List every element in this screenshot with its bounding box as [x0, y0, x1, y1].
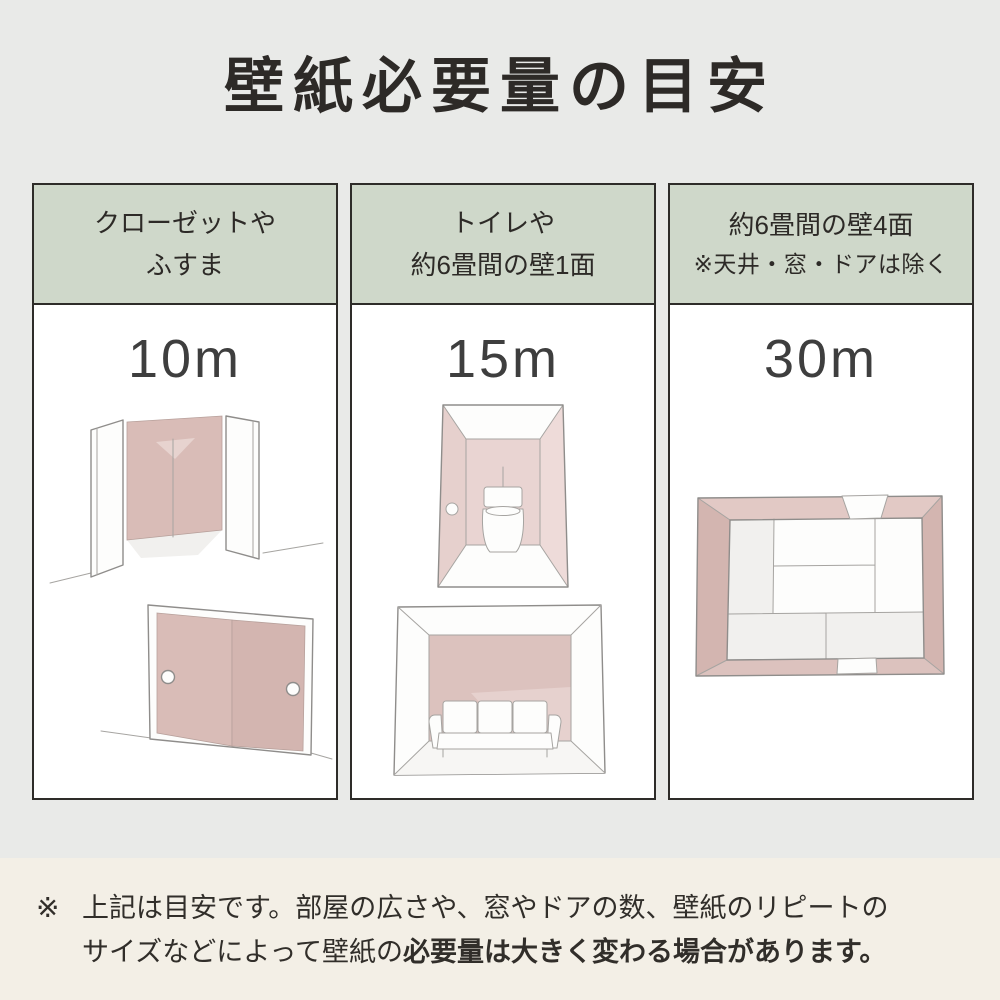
open-closet-icon [35, 397, 335, 593]
footnote-line2-bold: 必要量は大きく変わる場合があります。 [403, 937, 886, 967]
column-toilet-one-wall: トイレや 約6畳間の壁1面 15m [350, 183, 656, 800]
footnote-line2-normal: サイズなどによって壁紙の [82, 937, 403, 967]
meters-value-toilet: 15m [352, 321, 654, 397]
reference-mark-icon: ※ [36, 886, 59, 930]
room-four-walls-top-view-icon [690, 480, 952, 690]
column-closet-header: クローゼットや ふすま [34, 185, 336, 305]
header-line2: 約6畳間の壁1面 [411, 249, 596, 282]
header-line2: ※天井・窓・ドアは除く [694, 250, 949, 279]
toilet-illustrations [352, 397, 654, 798]
room-single-accent-wall-icon [383, 595, 623, 787]
footnote-line1-text: 上記は目安です。部屋の広さや、窓やドアの数、壁紙のリピートの [82, 893, 889, 923]
header-line1: 約6畳間の壁4面 [729, 209, 914, 242]
page-title: 壁紙必要量の目安 [0, 54, 1000, 120]
footnote-line1: ※上記は目安です。部屋の広さや、窓やドアの数、壁紙のリピートの [36, 886, 970, 930]
header-line2: ふすま [146, 249, 224, 282]
header-line1: クローゼットや [94, 207, 276, 240]
meters-value-four-walls: 30m [670, 321, 972, 397]
meters-value-closet: 10m [34, 321, 336, 397]
header-line1: トイレや [451, 207, 555, 240]
toilet-room-icon [418, 397, 588, 595]
footnote-line2: サイズなどによって壁紙の必要量は大きく変わる場合があります。 [36, 930, 970, 974]
footnote: ※上記は目安です。部屋の広さや、窓やドアの数、壁紙のリピートの サイズなどによっ… [0, 858, 1000, 1000]
infographic: 壁紙必要量の目安 クローゼットや ふすま 10m [0, 0, 1000, 1000]
fusuma-sliding-doors-icon [35, 593, 335, 793]
guide-columns: クローゼットや ふすま 10m [32, 183, 974, 800]
closet-illustrations [34, 397, 336, 798]
column-four-walls: 約6畳間の壁4面 ※天井・窓・ドアは除く 30m [668, 183, 974, 800]
column-closet-fusuma: クローゼットや ふすま 10m [32, 183, 338, 800]
four-walls-illustrations [670, 397, 972, 798]
column-four-walls-header: 約6畳間の壁4面 ※天井・窓・ドアは除く [670, 185, 972, 305]
column-toilet-header: トイレや 約6畳間の壁1面 [352, 185, 654, 305]
